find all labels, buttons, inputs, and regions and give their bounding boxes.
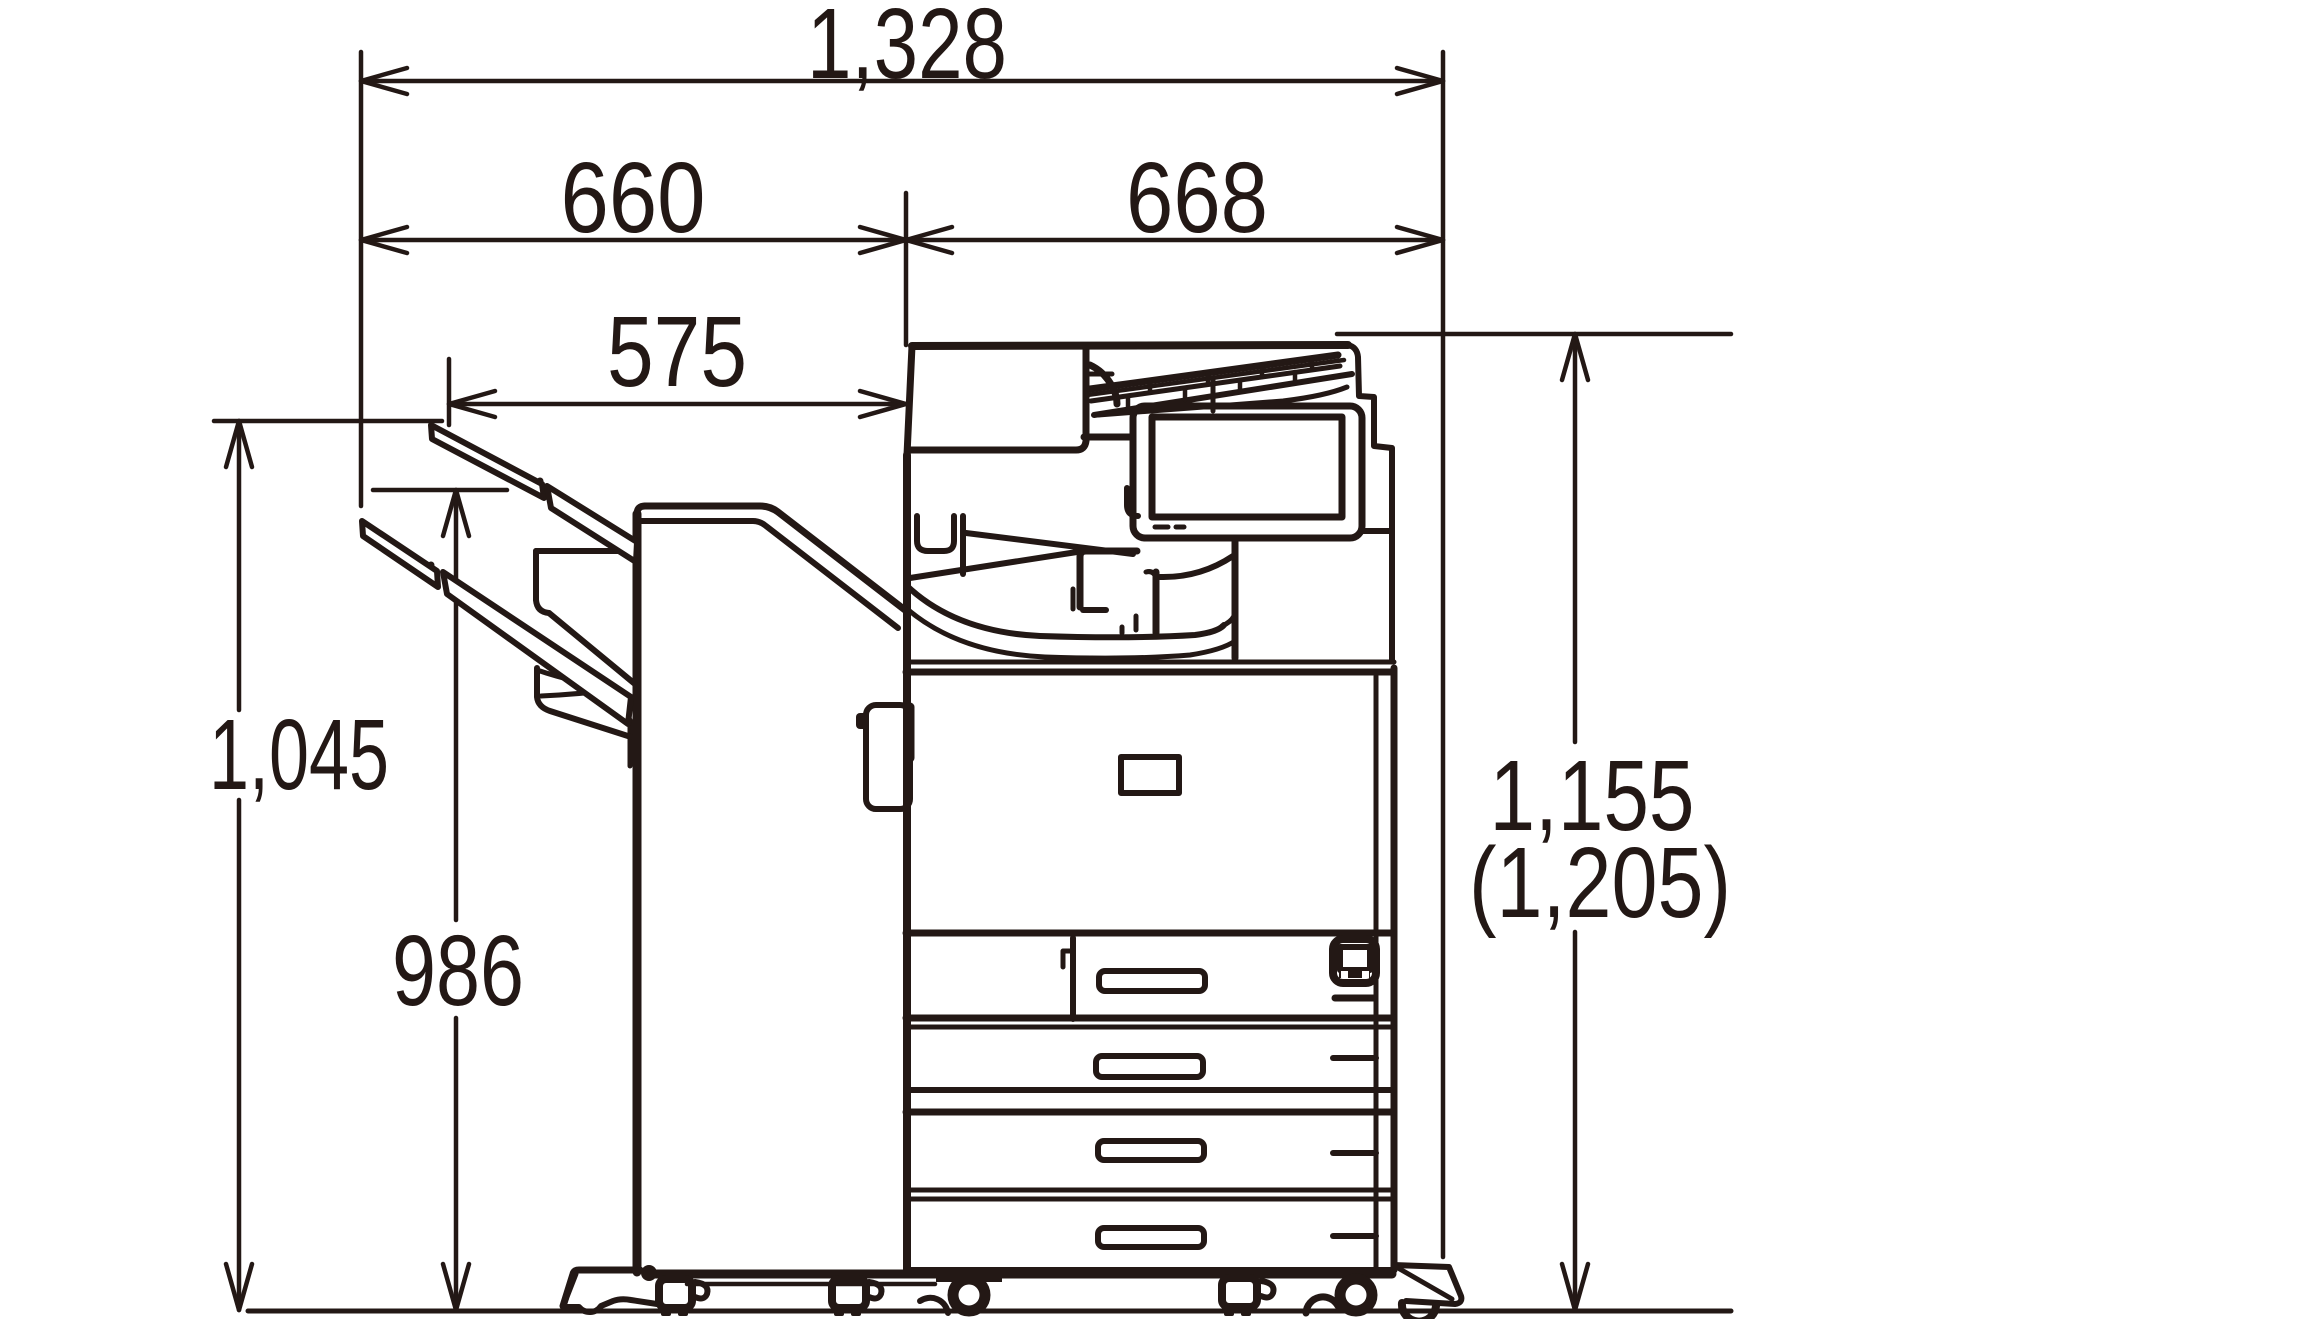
svg-text:986: 986: [392, 915, 524, 1027]
svg-text:575: 575: [607, 296, 747, 408]
svg-text:660: 660: [561, 142, 706, 254]
svg-text:1,045: 1,045: [209, 699, 389, 811]
svg-text:1,328: 1,328: [807, 0, 1007, 100]
svg-text:668: 668: [1126, 142, 1268, 254]
svg-text:(1,205): (1,205): [1469, 827, 1731, 939]
